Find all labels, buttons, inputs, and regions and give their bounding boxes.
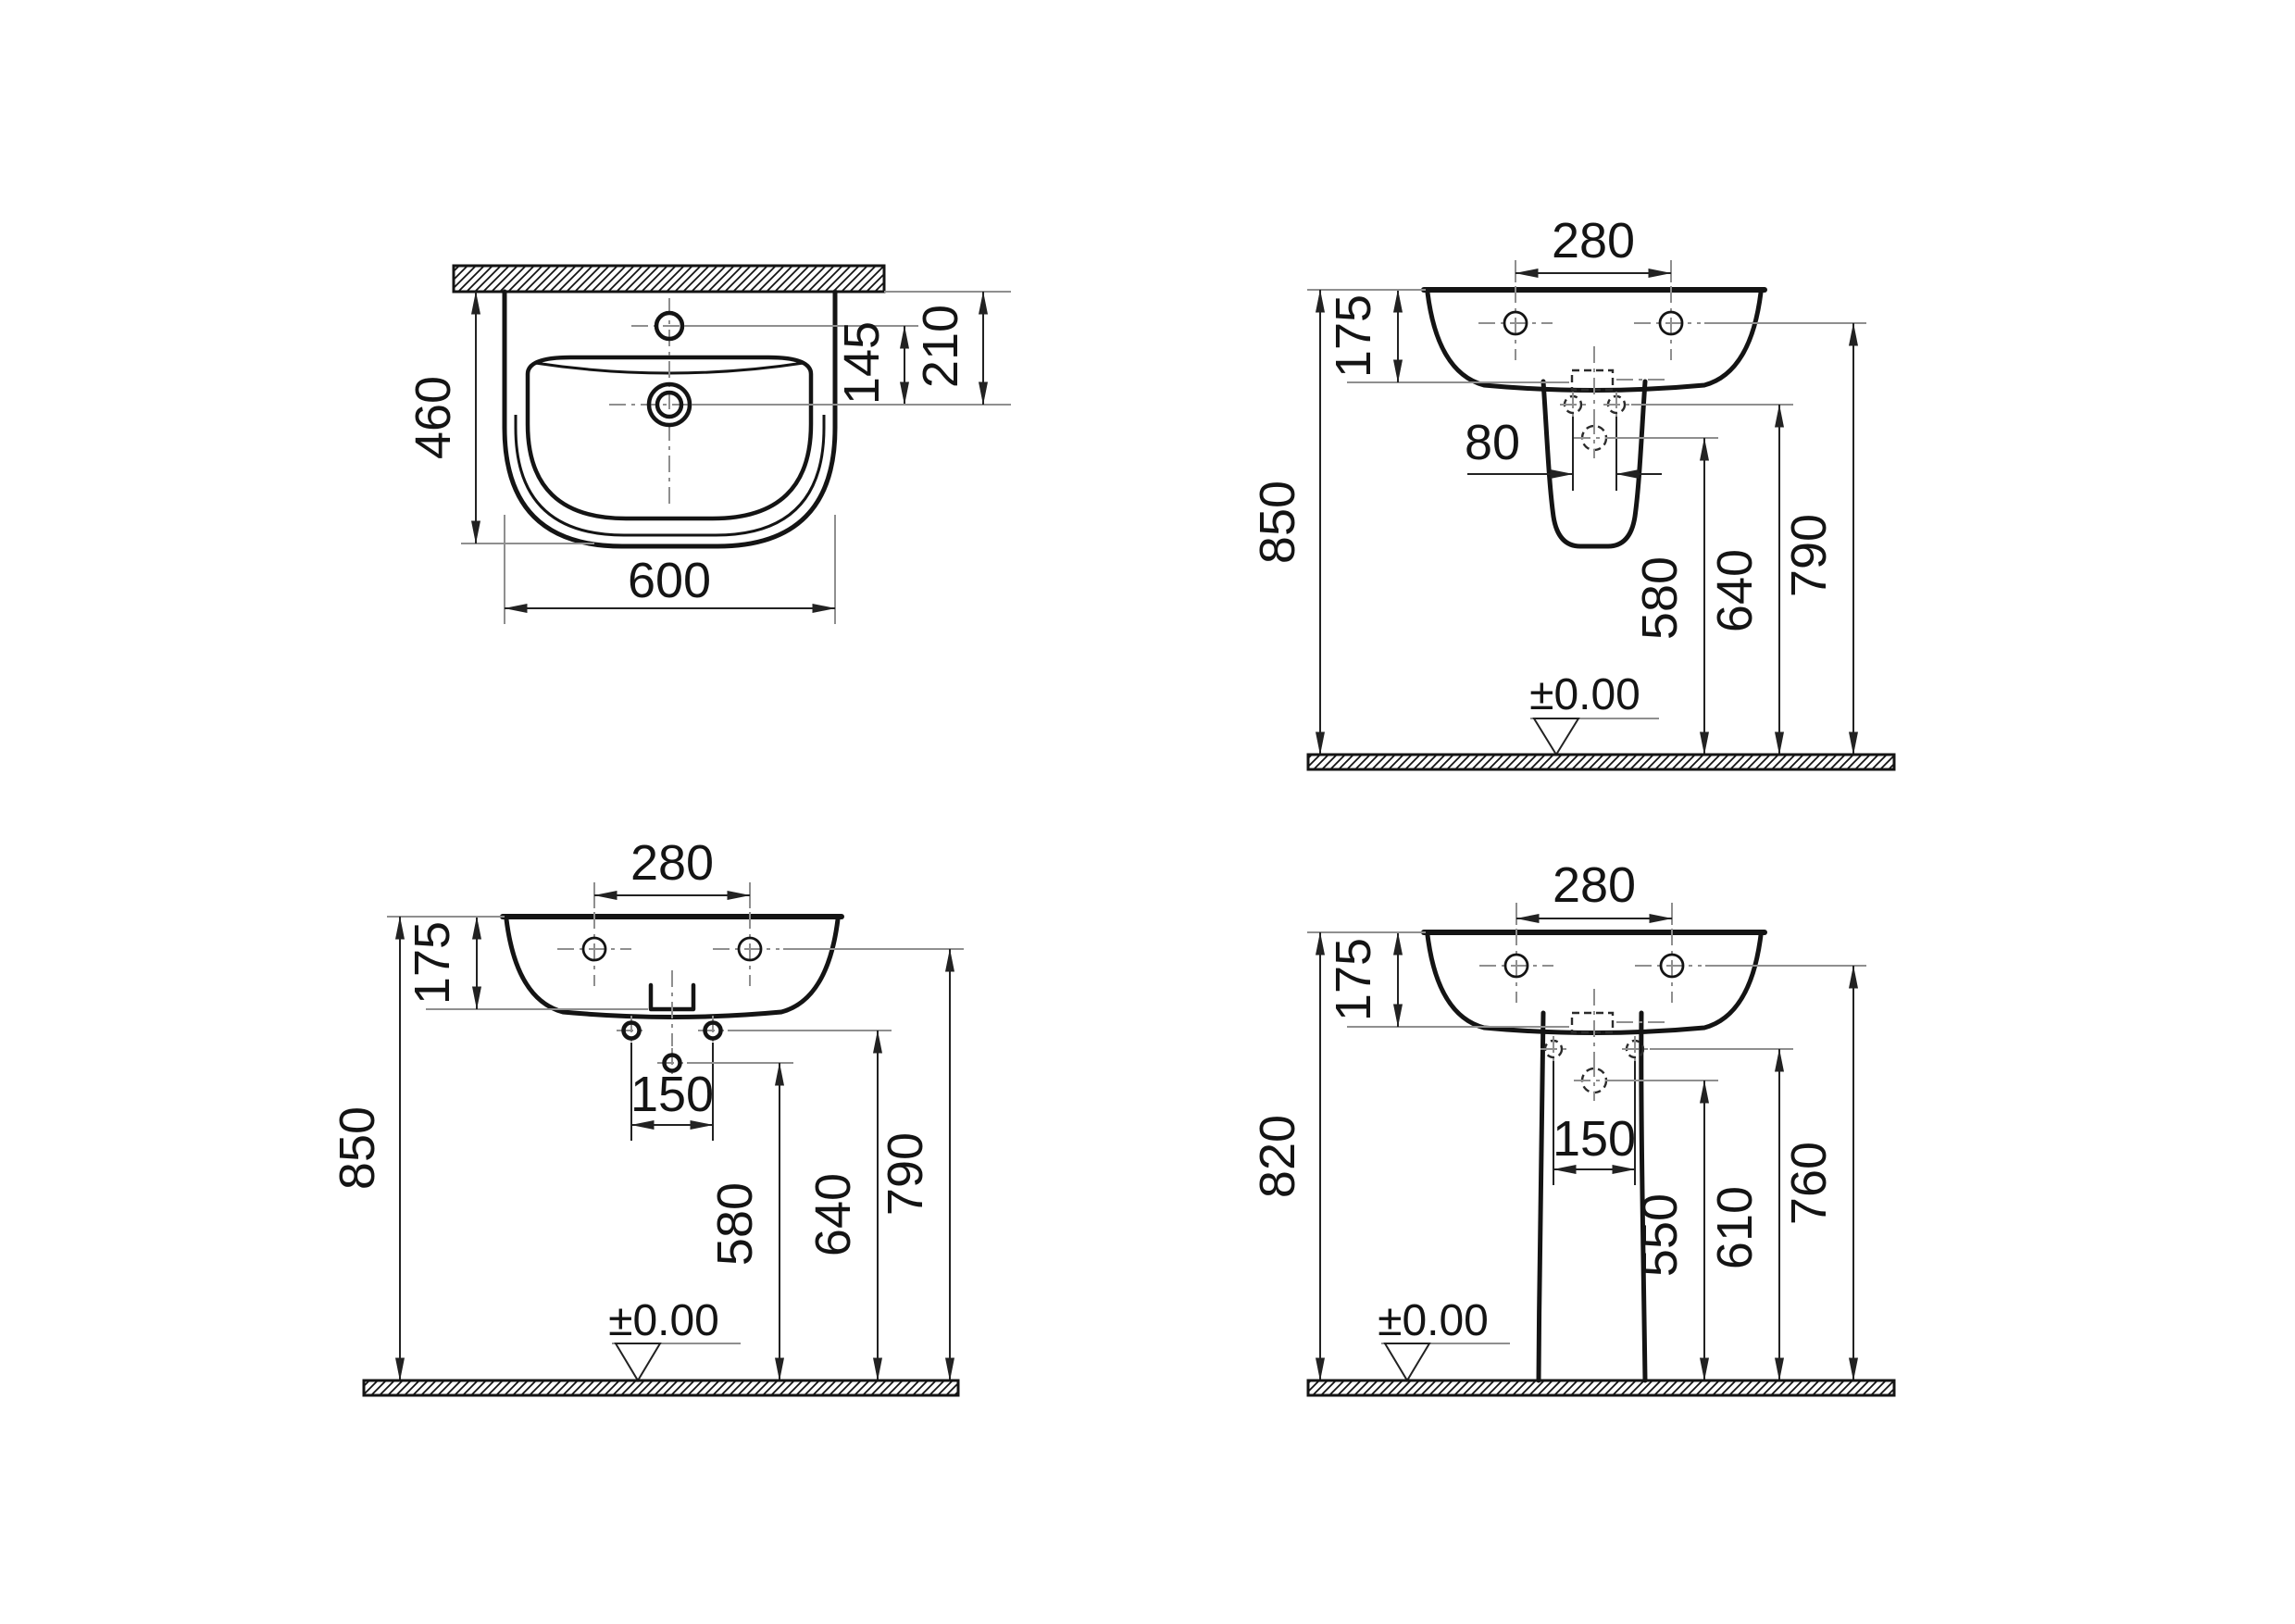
page-background bbox=[0, 0, 2295, 1624]
dim-label-basin-height: 175 bbox=[405, 921, 460, 1005]
dim-label-fixing-height: 760 bbox=[1781, 1142, 1837, 1225]
dim-label-bolt-height: 640 bbox=[805, 1173, 861, 1256]
dim-label-total-height: 820 bbox=[1250, 1115, 1305, 1198]
dim-label-hole-spacing: 280 bbox=[1553, 857, 1636, 913]
dim-label-depth: 460 bbox=[405, 376, 461, 459]
dim-label-fixing-height: 790 bbox=[1781, 514, 1837, 597]
dim-label-bolt-spacing: 80 bbox=[1465, 415, 1520, 470]
dim-label-tap-to-drain: 145 bbox=[834, 321, 890, 405]
dim-label-wall-to-drain: 210 bbox=[913, 305, 968, 388]
dim-label-bolt-height: 610 bbox=[1707, 1186, 1763, 1269]
dim-label-trap-height: 580 bbox=[707, 1182, 763, 1266]
technical-drawing-page: 460 600 145 210 bbox=[0, 0, 2295, 1624]
dim-label-total-height: 850 bbox=[1250, 481, 1305, 564]
dim-label-trap-height: 550 bbox=[1632, 1193, 1688, 1277]
dim-label-basin-height: 175 bbox=[1326, 938, 1381, 1021]
dim-label-fixing-height: 790 bbox=[878, 1132, 933, 1216]
dim-label-hole-spacing: 280 bbox=[630, 835, 714, 891]
dim-label-total-height: 850 bbox=[330, 1106, 385, 1190]
dim-label-width: 600 bbox=[628, 553, 711, 608]
floor-section-hatch bbox=[1308, 755, 1894, 769]
dim-label-basin-height: 175 bbox=[1326, 294, 1381, 378]
datum-level-label: ±0.00 bbox=[608, 1296, 719, 1345]
floor-section-hatch bbox=[1308, 1380, 1894, 1395]
technical-drawing-canvas: 460 600 145 210 bbox=[0, 0, 2295, 1624]
wall-section-hatch bbox=[454, 266, 884, 292]
floor-section-hatch bbox=[364, 1380, 958, 1395]
datum-level-label: ±0.00 bbox=[1378, 1296, 1489, 1345]
dim-label-bolt-spacing: 150 bbox=[1553, 1111, 1636, 1167]
dim-label-trap-height: 580 bbox=[1632, 556, 1688, 640]
datum-level-label: ±0.00 bbox=[1529, 670, 1640, 719]
dim-label-bolt-spacing: 150 bbox=[630, 1067, 714, 1122]
dim-label-bolt-height: 640 bbox=[1707, 549, 1763, 632]
dim-label-hole-spacing: 280 bbox=[1552, 213, 1635, 269]
